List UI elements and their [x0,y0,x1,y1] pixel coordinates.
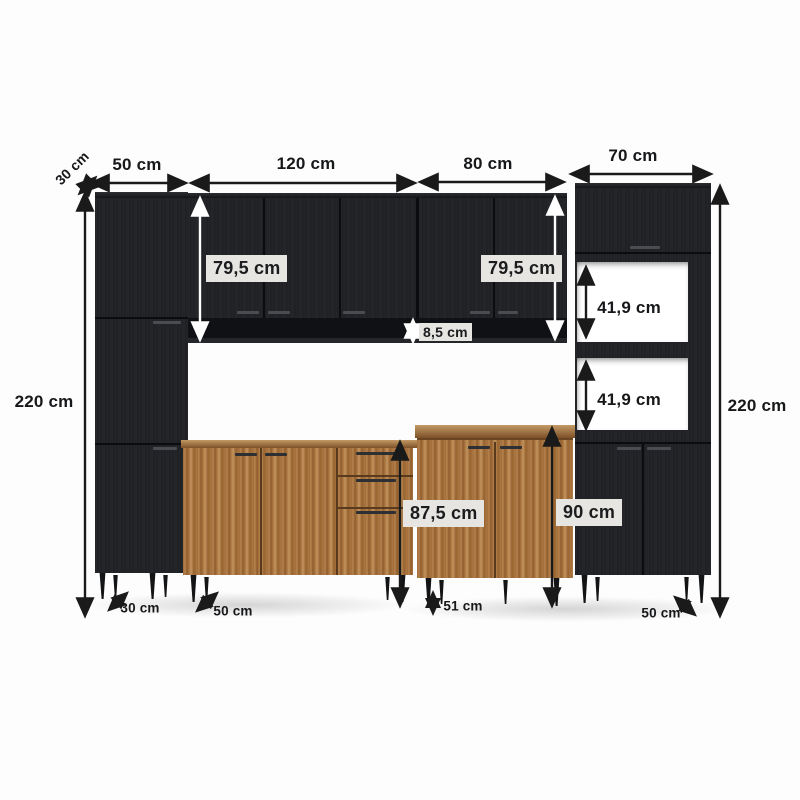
top-edge [417,438,573,440]
door-handle [235,453,257,456]
dim-label-height-220-right: 220 cm [728,396,787,416]
tower-top-board [575,183,711,188]
dim-label-8-5: 8,5 cm [419,323,472,341]
kitchen-dimension-diagram: 30 cm 50 cm 120 cm 80 cm 70 cm 220 cm 22… [0,0,800,800]
door-handle [647,447,671,450]
dim-label-90: 90 cm [556,499,622,526]
dim-label-width-50: 50 cm [112,155,161,175]
drawer-handle [356,511,396,514]
base-cabinet-a [183,448,413,575]
drawer-gap [336,507,413,509]
door-handle [617,447,641,450]
dim-arrow-30-topleft [81,179,94,192]
dim-label-width-70: 70 cm [608,146,657,166]
shelf-board [188,338,567,343]
cabinet-joint-gap [416,198,419,318]
dim-label-width-80: 80 cm [463,154,512,174]
drawer-handle [356,452,396,455]
door-handle [470,311,490,314]
door-gap [642,444,644,575]
door-handle [498,311,518,314]
door-handle [153,321,181,324]
door-handle [630,246,660,249]
dim-label-41-9-top: 41,9 cm [597,298,661,318]
dim-label-50-bottomleft: 50 cm [213,604,252,619]
dim-label-41-9-bottom: 41,9 cm [597,390,661,410]
dim-label-79-5-left: 79,5 cm [206,255,287,282]
door-drawer-gap [336,448,338,575]
drawer-gap [336,475,413,477]
dim-label-depth-top-left: 30 cm [52,148,92,188]
dim-label-height-220-left: 220 cm [15,392,74,412]
door-handle [268,311,290,314]
door-gap [95,317,188,319]
base-cabinet-top-board [181,440,417,448]
door-handle [468,446,490,449]
dim-label-51: 51 cm [443,599,482,614]
door-handle [153,447,177,450]
door-gap [260,448,262,575]
door-handle [265,453,287,456]
door-handle [500,446,522,449]
door-gap [575,252,711,254]
dim-label-79-5-right: 79,5 cm [481,255,562,282]
door-gap [95,443,188,445]
door-handle [237,311,259,314]
door-gap [339,198,341,318]
dim-label-width-120: 120 cm [277,154,336,174]
drawer-handle [356,479,396,482]
door-handle [343,311,365,314]
dim-label-30-bottom: 30 cm [120,601,159,616]
dim-label-87-5: 87,5 cm [403,500,484,527]
door-gap [494,442,496,578]
wall-cabinet-shelf-strip [188,318,567,343]
dim-label-50-bottomright: 50 cm [641,606,680,621]
counter-cabinet-ledge [415,425,575,438]
left-tall-cabinet [95,198,188,573]
